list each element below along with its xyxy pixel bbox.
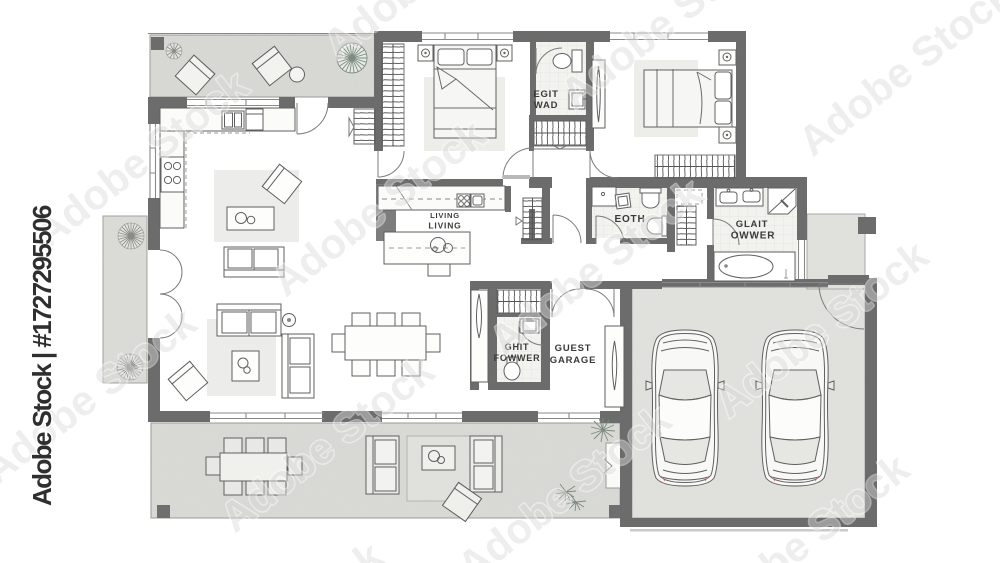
svg-text:GLAIT: GLAIT [736, 219, 769, 230]
svg-text:Adobe Stock | #1727295506: Adobe Stock | #1727295506 [27, 205, 57, 506]
svg-text:GARAGE: GARAGE [550, 355, 597, 366]
svg-text:WAD: WAD [534, 100, 559, 111]
svg-text:EGIT: EGIT [533, 89, 558, 100]
svg-text:LIVING: LIVING [428, 221, 461, 231]
svg-text:OWWER: OWWER [731, 231, 776, 242]
svg-text:GUEST: GUEST [555, 343, 592, 354]
svg-text:LIVING: LIVING [430, 211, 460, 220]
